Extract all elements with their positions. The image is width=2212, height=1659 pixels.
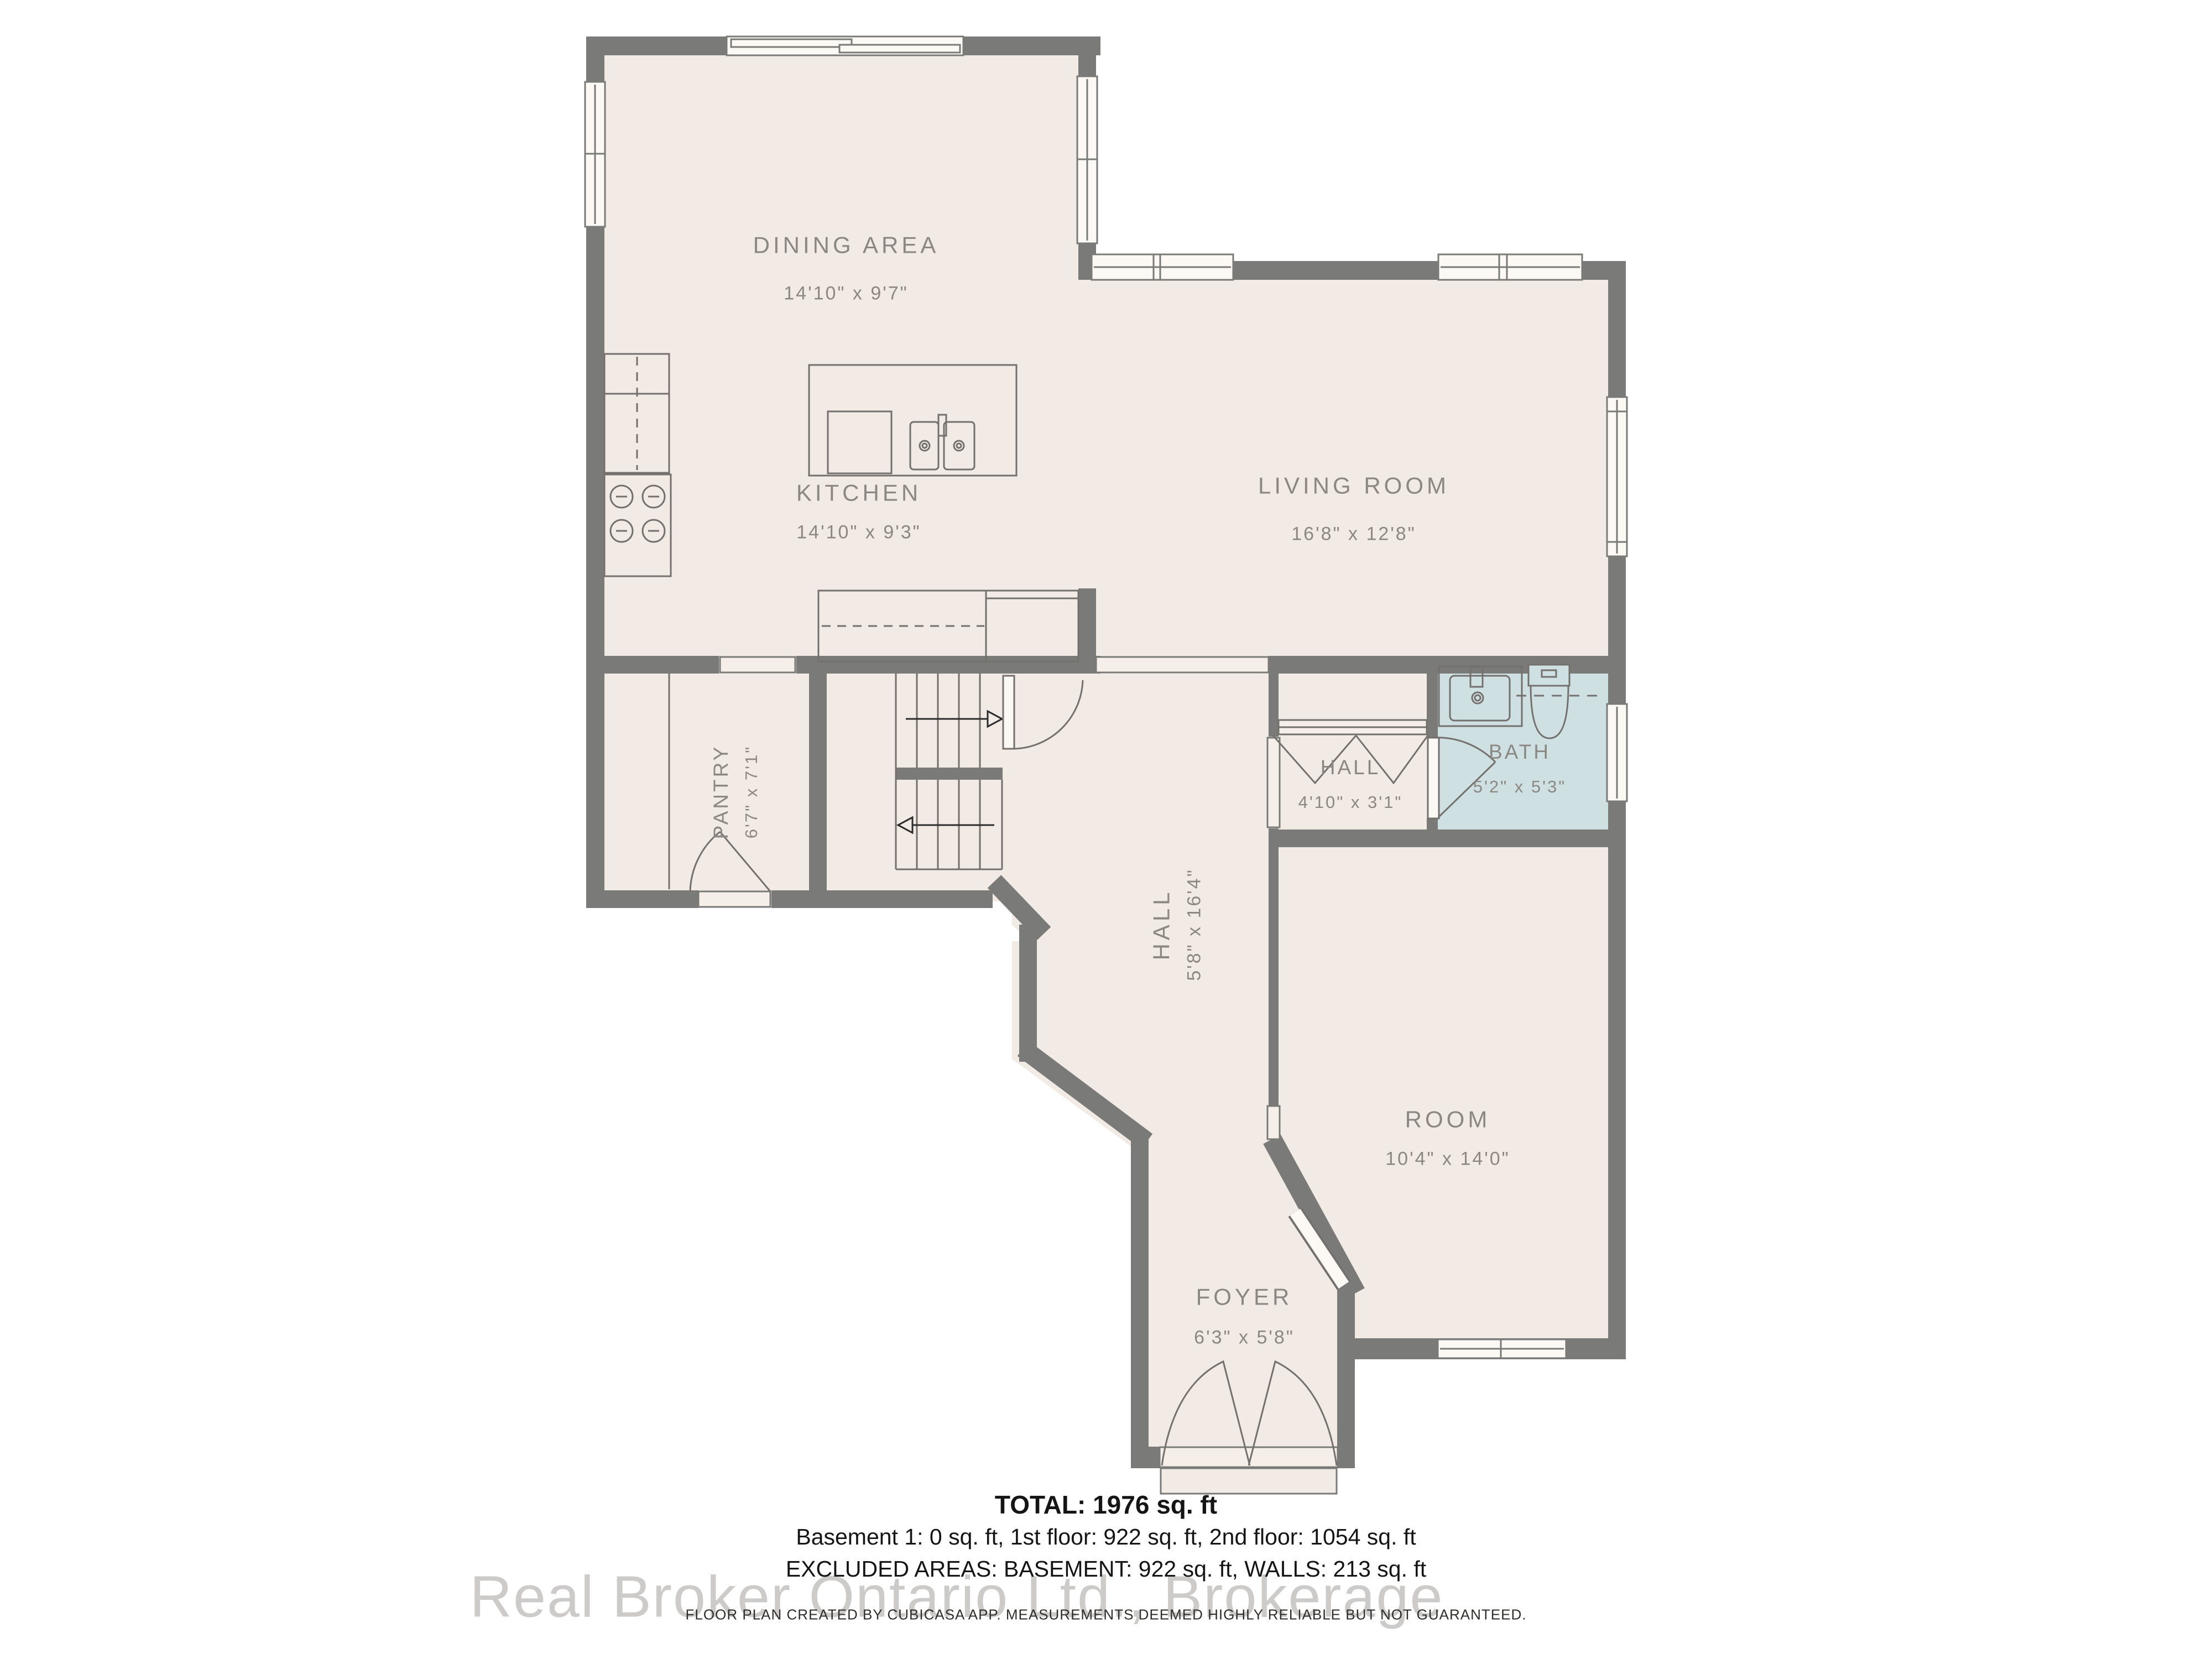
label-living-room: LIVING ROOM 16'8" x 12'8" [1258,473,1449,545]
window-living-top-1 [1092,254,1233,280]
sliding-door-panel-2 [839,45,960,53]
wall-bath-left-upper [1427,674,1438,738]
foyer-name: FOYER [1194,1284,1295,1311]
foyer-dims: 6'3" x 5'8" [1194,1327,1295,1349]
wall-closet-bath-top [1269,656,1626,674]
hall-dims: 5'8" x 16'4" [1184,868,1206,981]
wall-pantry-top [586,656,719,674]
label-dining-area: DINING AREA 14'10" x 9'7" [753,232,940,305]
wall-pantry-stairs [809,656,827,908]
label-bath: BATH 5'2" x 5'3" [1473,740,1567,797]
label-hall-stairs: HALL 5'8" x 16'4" [1149,868,1206,981]
wall-pantry-bottom-left [586,890,698,908]
wall-hall-right-upper [1269,656,1279,737]
room-name: ROOM [1385,1107,1510,1133]
excluded-areas-text: EXCLUDED AREAS: BASEMENT: 922 sq. ft, WA… [786,1556,1426,1582]
opening-pantry-exterior-door [698,891,770,907]
wall-bath-bottom [1269,830,1626,847]
label-hall-closet: HALL 4'10" x 3'1" [1298,756,1403,812]
floor-plan-drawing [0,0,2212,1659]
window-bath-right [1607,704,1627,801]
room-dims: 10'4" x 14'0" [1385,1149,1510,1170]
floor-plan-page: DINING AREA 14'10" x 9'7" KITCHEN 14'10"… [0,0,2212,1659]
label-pantry: PANTRY 6'7" x 7'1" [709,745,761,839]
living-room-floor [1081,268,1618,669]
hall-name: HALL [1149,868,1175,981]
wall-bath-left-lower [1427,818,1438,847]
label-foyer: FOYER 6'3" x 5'8" [1194,1284,1295,1349]
dining-name: DINING AREA [753,232,940,259]
kitchen-island [809,365,1016,476]
floor-areas-text: Basement 1: 0 sq. ft, 1st floor: 922 sq.… [796,1524,1416,1550]
kitchen-name: KITCHEN [796,480,921,507]
window-room-bottom [1438,1339,1566,1358]
hall-closet-floor [1269,661,1438,845]
label-room: ROOM 10'4" x 14'0" [1385,1107,1510,1170]
sliding-door-panel-1 [731,39,852,47]
cased-opening-living-hall [1096,657,1269,672]
pantry-dims: 6'7" x 7'1" [742,745,761,839]
wall-stair-landing [896,768,1003,780]
total-area-text: TOTAL: 1976 sq. ft [995,1490,1217,1520]
dining-dims: 14'10" x 9'7" [753,283,940,305]
bath-dims: 5'2" x 5'3" [1473,777,1567,797]
opening-hall-closet [1267,738,1280,827]
window-living-right [1607,397,1627,556]
wall-hall-right-lower [1269,828,1279,1106]
living-name: LIVING ROOM [1258,473,1449,499]
window-left-wall [585,82,605,227]
wall-pantry-bottom-right [771,890,993,908]
wall-hall-left [1019,925,1037,1062]
hall2-name: HALL [1298,756,1403,779]
opening-hall-room [1267,1106,1280,1139]
wall-kitchen-stairs [796,656,1100,674]
opening-kitchen-pantry [720,657,795,672]
kitchen-dims: 14'10" x 9'3" [796,522,921,544]
bath-name: BATH [1473,740,1567,764]
wall-kitchen-stub [1078,588,1096,657]
window-dining-right [1077,76,1097,243]
disclaimer-text: FLOOR PLAN CREATED BY CUBICASA APP. MEAS… [686,1606,1527,1624]
pantry-name: PANTRY [709,745,733,839]
wall-foyer-left [1131,1131,1149,1468]
hall2-dims: 4'10" x 3'1" [1298,792,1403,812]
living-dims: 16'8" x 12'8" [1258,524,1449,545]
label-kitchen: KITCHEN 14'10" x 9'3" [796,480,921,544]
wall-foyer-right [1337,1284,1355,1468]
stove-icon [604,474,671,576]
window-living-top-2 [1438,254,1582,280]
pantry-stair-hall-floor [594,661,1279,901]
